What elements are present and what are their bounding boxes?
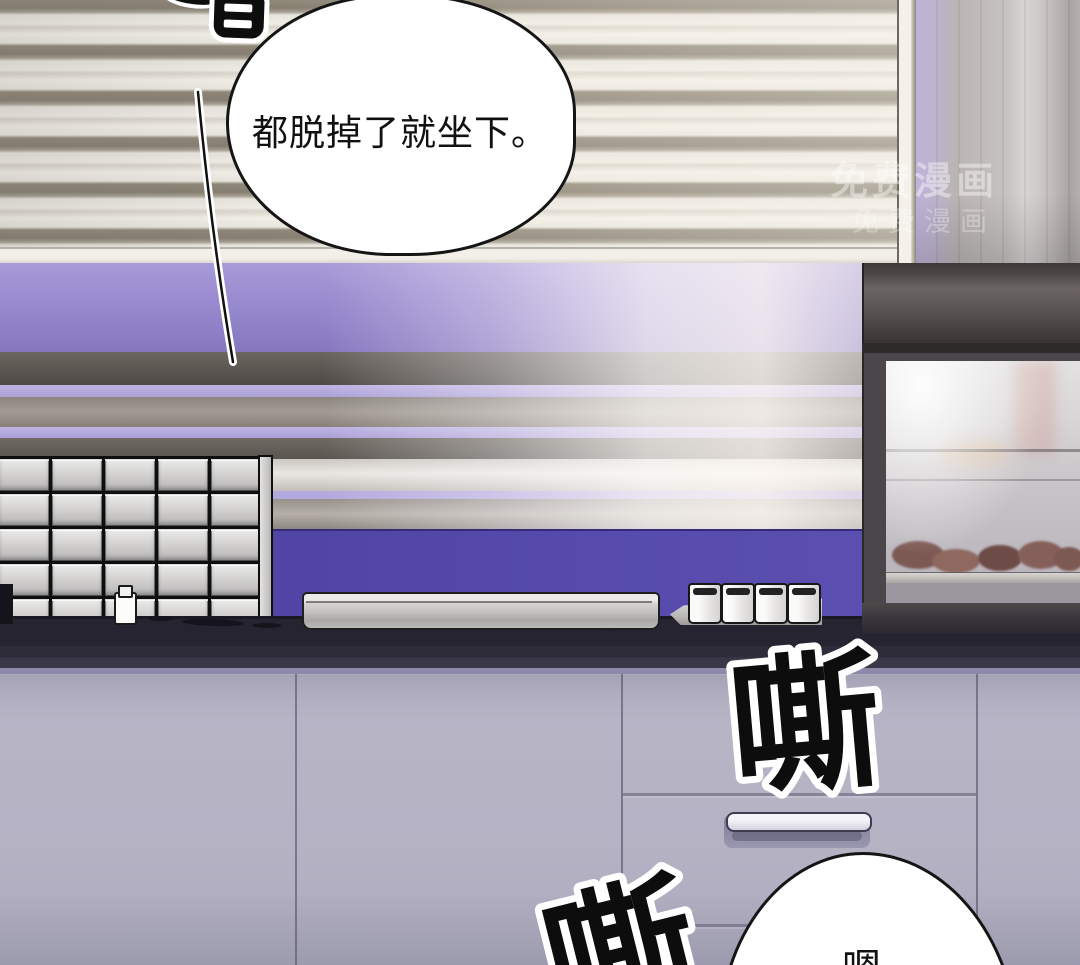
rack-cell bbox=[158, 529, 208, 561]
dark-box bbox=[0, 584, 13, 624]
display-case-lip bbox=[862, 343, 1080, 353]
food-display-case bbox=[862, 263, 1080, 633]
glyph-slot bbox=[224, 19, 252, 28]
counter-crumbs bbox=[252, 623, 282, 628]
rack-cell bbox=[0, 494, 49, 526]
speech-bubble-top-text: 都脱掉了就坐下。 bbox=[252, 104, 548, 156]
rack-cell bbox=[105, 494, 155, 526]
counter-crumbs bbox=[148, 616, 174, 621]
rack-cell bbox=[105, 529, 155, 561]
rack-cell bbox=[211, 564, 261, 596]
rack-side-rail bbox=[258, 455, 273, 631]
rack-cell bbox=[0, 529, 49, 561]
manhwa-panel: 都脱掉了就坐下。 嗯 嘶 嘶 免费漫画 免费漫画 bbox=[0, 0, 1080, 965]
rack-cell bbox=[52, 564, 102, 596]
rack-cell bbox=[211, 494, 261, 526]
metal-tray bbox=[302, 592, 660, 630]
rack-cell bbox=[52, 494, 102, 526]
rack-cell bbox=[158, 459, 208, 491]
rack-cell bbox=[158, 564, 208, 596]
display-case-hood bbox=[862, 263, 1080, 343]
speech-bubble-bottom-text: 嗯 bbox=[842, 936, 883, 965]
metal-tray-rim bbox=[306, 601, 652, 603]
glyph-slot bbox=[224, 3, 252, 12]
rack-cell bbox=[158, 494, 208, 526]
small-bottle-cap bbox=[118, 585, 133, 598]
drawer-handle-shadow bbox=[732, 831, 862, 841]
sfx-hiss-partial: 嘶 bbox=[505, 858, 735, 965]
rack-cell bbox=[105, 459, 155, 491]
rack-cell bbox=[0, 459, 49, 491]
glass-glare bbox=[886, 361, 1080, 603]
watermark-line1: 免费漫画 bbox=[830, 150, 998, 205]
sfx-hiss-large: 嘶 bbox=[690, 612, 920, 822]
cabinet-seam bbox=[295, 674, 297, 965]
watermark-line2: 免费漫画 bbox=[852, 200, 996, 239]
rack-cell bbox=[52, 459, 102, 491]
rack-cell bbox=[211, 529, 261, 561]
sfx-partial-glyph bbox=[213, 0, 264, 39]
rack-cell bbox=[52, 529, 102, 561]
rack-cell bbox=[211, 459, 261, 491]
svg-text:嘶: 嘶 bbox=[723, 633, 888, 819]
display-case-glass bbox=[886, 361, 1080, 603]
svg-text:嘶: 嘶 bbox=[528, 858, 716, 965]
